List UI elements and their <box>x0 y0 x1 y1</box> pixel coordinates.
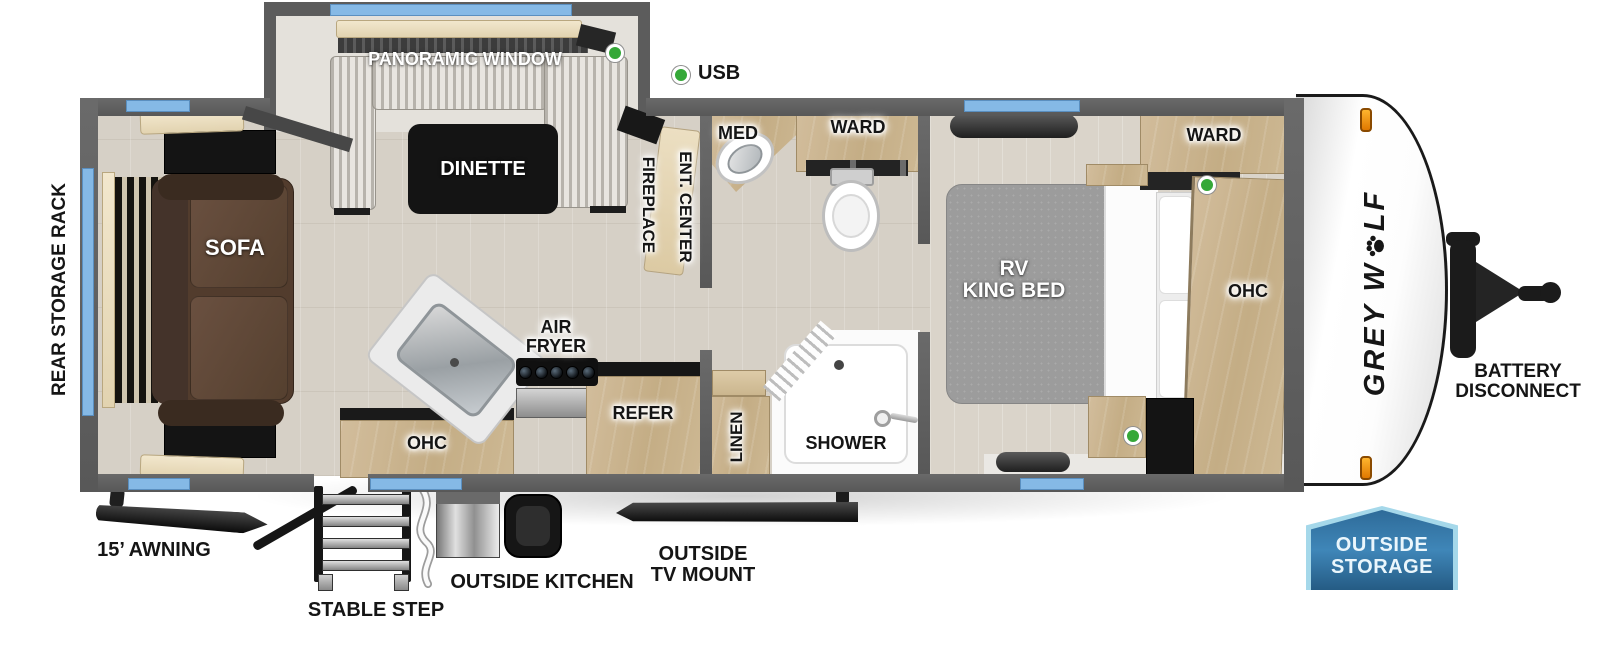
sofa-label: SOFA <box>180 236 290 259</box>
usb-legend-dot <box>672 66 690 84</box>
step-rung <box>322 538 410 549</box>
window-bottom-rear <box>128 478 190 490</box>
wall-bath-left-upper <box>700 116 712 288</box>
step-rung <box>322 516 410 527</box>
burner-icon <box>519 366 532 379</box>
nightstand-top <box>1086 164 1148 186</box>
shower-drain <box>834 360 844 370</box>
brand-text-2: LF <box>1359 190 1392 231</box>
bedroom-ohc-door <box>1182 176 1292 479</box>
wall-bottom-left <box>80 474 314 492</box>
window-slideout <box>330 4 572 16</box>
floorplan-canvas: DINETTE PANORAMIC WINDOW USB REAR STORAG… <box>0 0 1600 656</box>
shower-head-icon <box>874 410 891 427</box>
burner-icon <box>535 366 548 379</box>
outside-kitchen-case-lid <box>516 506 550 546</box>
refrigerator <box>586 376 702 484</box>
bath-ward-label: WARD <box>812 118 904 137</box>
bedroom-valance-bottom <box>996 452 1070 472</box>
marker-light-bottom <box>1360 456 1372 480</box>
linen-label: LINEN <box>728 397 746 477</box>
step-foot-left <box>318 574 333 591</box>
panoramic-window-label: PANORAMIC WINDOW <box>330 50 600 69</box>
wolf-paw-icon <box>1363 234 1387 258</box>
stove-cooktop <box>516 358 598 386</box>
usb-port-indicator-bed-top <box>1198 176 1216 194</box>
med-label: MED <box>712 124 764 143</box>
kitchen-ohc-label: OHC <box>392 434 462 453</box>
step-rung <box>322 560 410 571</box>
shower-label: SHOWER <box>796 434 896 453</box>
window-bottom-kitchen <box>370 478 462 490</box>
dinette-table: DINETTE <box>408 124 558 214</box>
usb-port-indicator-dinette <box>606 44 624 62</box>
king-bed-label: RV KING BED <box>944 258 1084 302</box>
tv-mount-tube <box>616 502 858 522</box>
burner-icon <box>566 366 579 379</box>
usb-port-indicator-bed-bottom <box>1124 427 1142 445</box>
window-rear-wall <box>82 168 94 416</box>
hitch-jack <box>1450 240 1476 358</box>
overhead-cabinet-rear-top <box>164 130 276 174</box>
stable-step-label: STABLE STEP <box>298 600 454 621</box>
dinette-label: DINETTE <box>440 159 526 180</box>
storage-rack-bar <box>102 172 115 408</box>
wall-bottom-right <box>368 474 1292 492</box>
hitch-coupler-ball <box>1540 282 1561 303</box>
marker-light-top <box>1360 108 1372 132</box>
ent-center-label: ENT. CENTER <box>676 141 694 273</box>
wall-front <box>1284 98 1304 492</box>
hitch-a-frame <box>1476 262 1524 322</box>
burner-icon <box>582 366 595 379</box>
outside-kitchen-griddle-top <box>436 492 500 504</box>
rear-storage-rack-label: REAR STORAGE RACK <box>50 186 70 396</box>
refrigerator-top <box>586 362 702 376</box>
sofa-backrest <box>152 178 188 404</box>
window-bottom-bedroom <box>1020 478 1084 490</box>
sink-drain <box>450 358 459 367</box>
fireplace-label: FIREPLACE <box>639 145 657 265</box>
outside-kitchen-label: OUTSIDE KITCHEN <box>438 572 646 593</box>
brand-text-1: GREY W <box>1359 261 1392 396</box>
window-top-rear <box>126 100 190 112</box>
nightstand-bottom <box>1088 396 1146 458</box>
bedroom-valance-top <box>950 114 1078 138</box>
battery-disconnect-label: BATTERY DISCONNECT <box>1438 362 1598 402</box>
outside-storage-badge-face: OUTSIDE STORAGE <box>1311 510 1453 594</box>
sofa-arm-top <box>158 174 284 200</box>
slideout-valance <box>336 20 582 38</box>
dinette-bench-foot-left <box>334 208 370 215</box>
step-rung <box>322 494 410 505</box>
brand-logo: GREY W LF <box>1356 158 1394 428</box>
bedroom-ohc-label: OHC <box>1212 282 1284 301</box>
sofa-arm-bottom <box>158 400 284 426</box>
wall-bath-right-upper <box>918 116 930 244</box>
usb-legend-label: USB <box>698 63 748 84</box>
refer-label: REFER <box>600 404 686 423</box>
linen-shelf <box>712 370 766 396</box>
awning-label: 15’ AWNING <box>78 540 230 561</box>
burner-icon <box>550 366 563 379</box>
badge-text-2: STORAGE <box>1331 556 1433 578</box>
wall-bath-right-lower <box>918 332 930 474</box>
toilet-seat <box>832 194 870 238</box>
outside-tv-mount-label: OUTSIDE TV MOUNT <box>626 544 780 586</box>
bed-sheet-fold <box>1104 184 1158 404</box>
dinette-bench-foot-right <box>590 206 626 213</box>
wall-bath-left-lower <box>700 350 712 474</box>
bedroom-cabinet-black <box>1146 398 1194 482</box>
air-fryer-label: AIR FRYER <box>506 318 606 356</box>
bedroom-ward-label: WARD <box>1166 126 1262 145</box>
sofa-cushion-bottom <box>190 296 288 400</box>
badge-text-1: OUTSIDE <box>1336 534 1428 556</box>
entry-steps <box>314 486 418 590</box>
window-top-bedroom <box>964 100 1080 112</box>
